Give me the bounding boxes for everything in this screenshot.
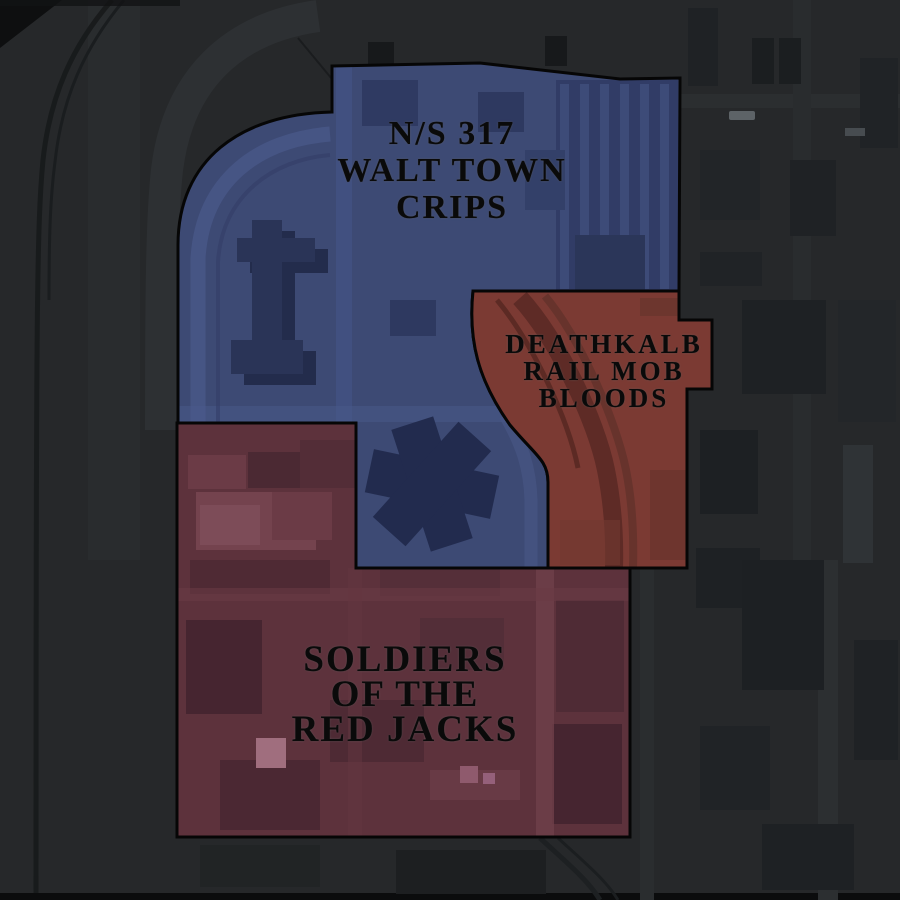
- bldg: [860, 58, 898, 148]
- bldg: [762, 824, 854, 890]
- label-line: RAIL MOB: [444, 358, 764, 385]
- bldg: [790, 160, 836, 236]
- label-line: SOLDIERS: [205, 642, 605, 677]
- bldg: [779, 38, 801, 84]
- bldg: [300, 440, 358, 488]
- bldg: [640, 298, 678, 316]
- bldg: [700, 252, 762, 286]
- road: [793, 0, 811, 570]
- gang-territory-map: N/S 317 WALT TOWN CRIPS DEATHKALB RAIL M…: [0, 0, 900, 900]
- bldg: [188, 455, 246, 489]
- territory-label-crips: N/S 317 WALT TOWN CRIPS: [232, 115, 672, 226]
- road: [177, 588, 630, 601]
- bldg: [200, 845, 320, 887]
- bldg: [220, 760, 320, 830]
- bldg: [843, 445, 873, 563]
- tower-bldg: [545, 36, 567, 66]
- bldg: [688, 8, 718, 86]
- bldg: [742, 560, 824, 690]
- bldg: [248, 452, 300, 488]
- bldg: [752, 38, 774, 84]
- bldg: [272, 492, 332, 540]
- bldg: [390, 300, 436, 336]
- map-edge-shadow: [0, 893, 900, 900]
- label-line: DEATHKALB: [444, 331, 764, 358]
- label-line: OF THE: [205, 677, 605, 712]
- label-line: N/S 317: [232, 115, 672, 152]
- tower-bldg: [368, 42, 394, 67]
- bldg: [700, 150, 760, 220]
- label-line: CRIPS: [232, 189, 672, 226]
- territory-label-bloods: DEATHKALB RAIL MOB BLOODS: [444, 331, 764, 412]
- label-line: RED JACKS: [205, 712, 605, 747]
- bldg: [396, 850, 546, 894]
- bldg: [650, 470, 686, 560]
- pink-bldg: [460, 766, 478, 783]
- territory-label-redjacks: SOLDIERS OF THE RED JACKS: [205, 642, 605, 747]
- parked-car: [729, 111, 755, 120]
- bldg: [854, 640, 898, 760]
- map-edge-shadow: [0, 0, 180, 6]
- parked-car: [845, 128, 865, 136]
- bldg: [575, 235, 645, 290]
- road: [640, 568, 654, 900]
- pink-bldg: [483, 773, 495, 784]
- label-line: BLOODS: [444, 385, 764, 412]
- label-line: WALT TOWN: [232, 152, 672, 189]
- bldg: [200, 505, 260, 545]
- bldg: [700, 726, 770, 810]
- road: [88, 0, 140, 560]
- bldg: [700, 430, 758, 514]
- bldg: [560, 520, 620, 565]
- bldg: [838, 300, 896, 422]
